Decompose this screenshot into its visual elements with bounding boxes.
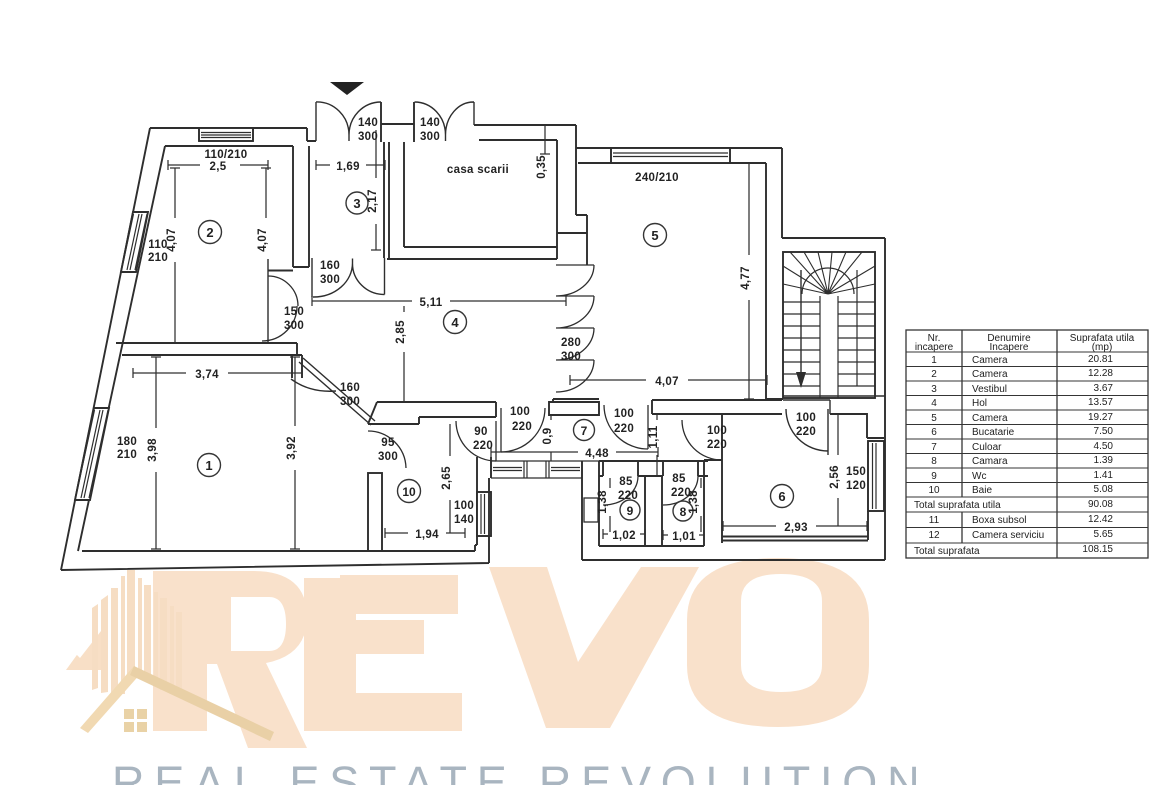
svg-text:1.41: 1.41 (1094, 470, 1114, 481)
svg-text:REAL ESTATE REVOLUTION: REAL ESTATE REVOLUTION (112, 757, 929, 785)
svg-text:7: 7 (931, 442, 937, 453)
svg-text:140: 140 (454, 514, 474, 526)
svg-text:1,38: 1,38 (597, 490, 609, 514)
svg-text:9: 9 (627, 504, 634, 518)
svg-text:2: 2 (206, 225, 213, 240)
svg-text:220: 220 (618, 490, 638, 502)
svg-text:100: 100 (796, 412, 816, 424)
svg-text:5.65: 5.65 (1094, 529, 1114, 540)
svg-text:7.50: 7.50 (1094, 426, 1114, 437)
svg-text:9: 9 (931, 471, 937, 482)
svg-text:108.15: 108.15 (1082, 544, 1113, 555)
svg-text:1.39: 1.39 (1094, 455, 1114, 466)
svg-text:2,17: 2,17 (367, 189, 379, 213)
svg-text:Camera: Camera (972, 355, 1008, 366)
svg-text:120: 120 (846, 480, 866, 492)
svg-text:210: 210 (117, 449, 137, 461)
svg-text:85: 85 (672, 473, 686, 485)
svg-text:3,74: 3,74 (195, 369, 219, 381)
svg-text:5,11: 5,11 (420, 297, 443, 309)
svg-text:1,02: 1,02 (612, 530, 636, 542)
svg-text:Camera serviciu: Camera serviciu (972, 530, 1044, 541)
svg-text:Camera: Camera (972, 369, 1008, 380)
svg-text:100: 100 (454, 500, 474, 512)
svg-text:4: 4 (451, 315, 459, 330)
svg-text:160: 160 (340, 382, 360, 394)
svg-text:7: 7 (581, 424, 588, 438)
svg-text:incapere: incapere (915, 342, 954, 353)
svg-text:180: 180 (117, 436, 137, 448)
svg-text:2,93: 2,93 (784, 522, 808, 534)
svg-text:3.67: 3.67 (1094, 383, 1114, 394)
svg-text:Boxa subsol: Boxa subsol (972, 515, 1026, 526)
svg-text:10: 10 (928, 485, 940, 496)
svg-text:2: 2 (931, 369, 937, 380)
svg-text:300: 300 (378, 451, 398, 463)
svg-text:Wc: Wc (972, 471, 986, 482)
svg-text:220: 220 (707, 439, 727, 451)
svg-text:90: 90 (474, 426, 487, 438)
svg-text:Vestibul: Vestibul (972, 384, 1007, 395)
svg-text:220: 220 (512, 421, 532, 433)
svg-text:220: 220 (796, 426, 816, 438)
svg-text:95: 95 (381, 437, 395, 449)
svg-text:210: 210 (148, 252, 168, 264)
svg-text:1,11: 1,11 (648, 425, 660, 448)
svg-text:300: 300 (358, 131, 378, 143)
svg-text:220: 220 (614, 423, 634, 435)
svg-text:12.28: 12.28 (1088, 368, 1113, 379)
svg-text:5: 5 (651, 228, 658, 243)
svg-text:240/210: 240/210 (635, 172, 679, 184)
svg-text:4.50: 4.50 (1094, 441, 1114, 452)
svg-text:Camera: Camera (972, 413, 1008, 424)
svg-text:2,65: 2,65 (441, 466, 453, 490)
svg-text:300: 300 (284, 320, 304, 332)
svg-text:8: 8 (931, 456, 937, 467)
svg-text:100: 100 (510, 406, 530, 418)
svg-text:4,07: 4,07 (166, 228, 178, 252)
svg-text:160: 160 (320, 260, 340, 272)
svg-text:8: 8 (680, 505, 687, 519)
svg-text:1,69: 1,69 (336, 161, 360, 173)
svg-text:100: 100 (707, 425, 727, 437)
svg-text:Total suprafata: Total suprafata (914, 546, 980, 557)
svg-text:3: 3 (353, 196, 360, 211)
svg-text:300: 300 (420, 131, 440, 143)
svg-text:110/210: 110/210 (204, 149, 247, 161)
svg-text:150: 150 (284, 306, 304, 318)
svg-text:20.81: 20.81 (1088, 354, 1113, 365)
svg-text:300: 300 (340, 396, 360, 408)
svg-text:Total suprafata utila: Total suprafata utila (914, 500, 1001, 511)
svg-text:Camara: Camara (972, 456, 1008, 467)
svg-text:(mp): (mp) (1092, 342, 1113, 353)
svg-text:100: 100 (614, 408, 634, 420)
svg-text:Culoar: Culoar (972, 442, 1002, 453)
svg-text:1,94: 1,94 (415, 529, 439, 541)
svg-text:85: 85 (619, 476, 633, 488)
svg-text:19.27: 19.27 (1088, 412, 1113, 423)
svg-text:Incapere: Incapere (990, 342, 1029, 353)
svg-text:5.08: 5.08 (1094, 484, 1114, 495)
svg-text:220: 220 (473, 440, 493, 452)
svg-text:Bucatarie: Bucatarie (972, 427, 1015, 438)
svg-text:4: 4 (931, 398, 937, 409)
svg-text:11: 11 (929, 515, 940, 526)
svg-text:140: 140 (420, 117, 440, 129)
svg-text:4,07: 4,07 (257, 228, 269, 252)
svg-text:13.57: 13.57 (1088, 397, 1113, 408)
svg-text:Baie: Baie (972, 485, 992, 496)
svg-text:220: 220 (671, 487, 691, 499)
svg-text:0,9: 0,9 (542, 428, 554, 445)
svg-text:12: 12 (928, 530, 940, 541)
svg-text:4,07: 4,07 (655, 376, 679, 388)
svg-text:3,98: 3,98 (147, 438, 159, 462)
svg-text:0,35: 0,35 (536, 155, 548, 179)
svg-text:6: 6 (931, 427, 937, 438)
svg-text:90.08: 90.08 (1088, 499, 1113, 510)
svg-text:4,48: 4,48 (585, 448, 609, 460)
svg-text:110: 110 (148, 239, 167, 251)
svg-text:1,01: 1,01 (672, 531, 696, 543)
svg-text:1: 1 (931, 355, 937, 366)
svg-text:casa scarii: casa scarii (447, 164, 509, 176)
svg-text:300: 300 (561, 351, 581, 363)
svg-text:150: 150 (846, 466, 866, 478)
svg-text:3,92: 3,92 (286, 436, 298, 460)
svg-text:6: 6 (778, 489, 785, 504)
svg-text:10: 10 (402, 485, 416, 499)
svg-text:280: 280 (561, 337, 581, 349)
svg-text:12.42: 12.42 (1088, 514, 1113, 525)
svg-text:300: 300 (320, 274, 340, 286)
svg-text:2,56: 2,56 (829, 465, 841, 489)
svg-text:140: 140 (358, 117, 378, 129)
svg-text:4,77: 4,77 (740, 266, 752, 290)
svg-text:Hol: Hol (972, 398, 987, 409)
svg-text:1: 1 (205, 458, 212, 473)
svg-text:2,85: 2,85 (395, 320, 407, 344)
svg-text:3: 3 (931, 384, 937, 395)
svg-text:5: 5 (931, 413, 937, 424)
svg-text:2,5: 2,5 (210, 161, 227, 173)
